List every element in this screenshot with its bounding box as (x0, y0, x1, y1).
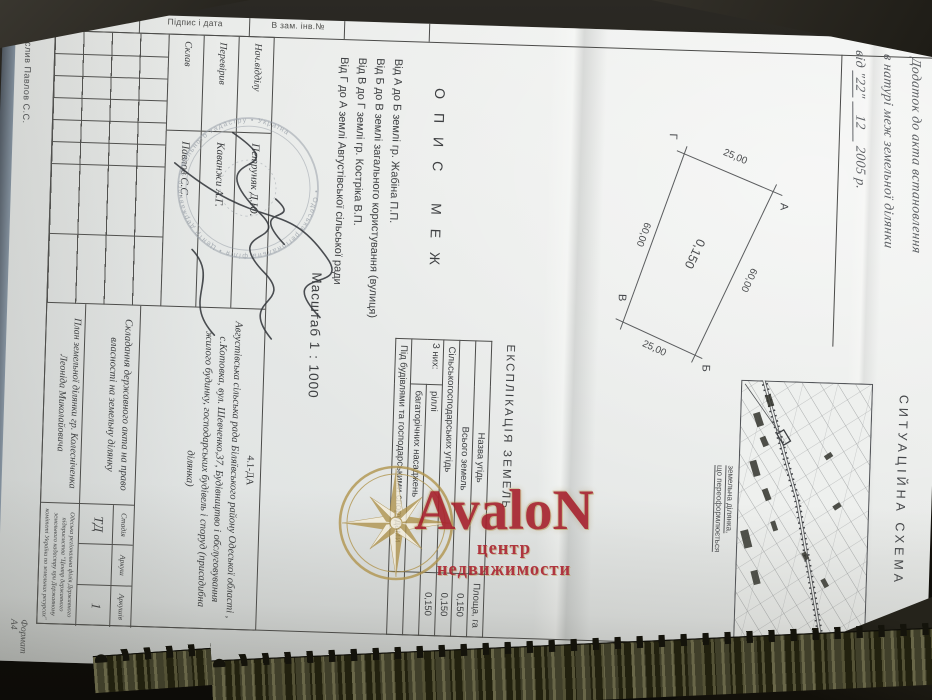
margin-divider (249, 18, 251, 36)
map-parcel-label: земельна ділянка, що переоформлюється (712, 465, 737, 553)
margin-cell-pidpys: Підпис і дата (149, 16, 241, 35)
pen-signatures (139, 100, 428, 409)
photographed-land-plan-document: В зам. інв.№ Підпис і дата Інв. № ориг. … (0, 0, 932, 700)
sheet-value (77, 544, 111, 586)
title-block-middle: Складання державного акта на право власн… (75, 304, 140, 628)
plan-corner-v: В (616, 294, 628, 302)
annotation-line3: від "22" 12 2005 р. (846, 49, 875, 363)
document-title: План земельної ділянки гр. Колесніченка … (40, 303, 85, 504)
annotation-line1: Додаток до акта встановлення (902, 56, 931, 370)
organization-name: Одеська регіональна філія Державного під… (36, 503, 79, 626)
boundary-description-title: ОПИС МЕЖ (426, 88, 448, 279)
sheets-header: Аркушів (109, 586, 131, 628)
plan-side-ab: 60,00 (738, 266, 759, 294)
work-task: Складання державного акта на право власн… (80, 304, 140, 506)
situational-schema-title: СИТУАЦІЙНА СХЕМА (891, 395, 911, 587)
handwritten-annotation: Додаток до акта встановлення в натурі ме… (846, 49, 931, 371)
situational-schema-map (733, 380, 873, 644)
ornate-border-fragment (93, 648, 213, 693)
plan-side-bv: 25,00 (640, 338, 668, 359)
annotation-day: "22" (852, 71, 868, 100)
explication-col-area: Площа, га (467, 574, 485, 637)
sheets-value: 1 (76, 585, 110, 627)
plan-side-ga: 25,00 (721, 147, 749, 167)
plan-corner-b: Б (699, 364, 711, 372)
plan-corner-g: Г (667, 133, 679, 139)
stage-header: Стадія (112, 505, 134, 546)
margin-cell-vzam: В зам. інв.№ (252, 19, 344, 38)
plan-side-vg: 60,00 (634, 221, 653, 249)
margin-divider (429, 24, 431, 42)
annotation-underline (832, 55, 842, 347)
paper-sheet: В зам. інв.№ Підпис і дата Інв. № ориг. … (0, 11, 932, 690)
annotation-month: 12 (852, 101, 868, 144)
parcel-plan-drawing: А Б В Г 25,00 60,00 25,00 60,00 0,150 (585, 109, 824, 396)
stage-value: ТД (79, 504, 113, 545)
annotation-line2: в натурі меж земельної ділянки (874, 52, 903, 366)
stage-table: Стадія Аркуш Аркушів ТД 1 (76, 504, 134, 628)
explication-title: ЕКСПЛІКАЦІЯ ЗЕМЕЛЬ (499, 344, 516, 510)
plan-area-label: 0,150 (682, 237, 708, 271)
format-label: Формат А4 (7, 619, 28, 662)
sheet-header: Аркуш (110, 545, 132, 587)
plan-corner-a: А (778, 203, 790, 211)
annotation-year: 2005 р. (853, 145, 868, 190)
